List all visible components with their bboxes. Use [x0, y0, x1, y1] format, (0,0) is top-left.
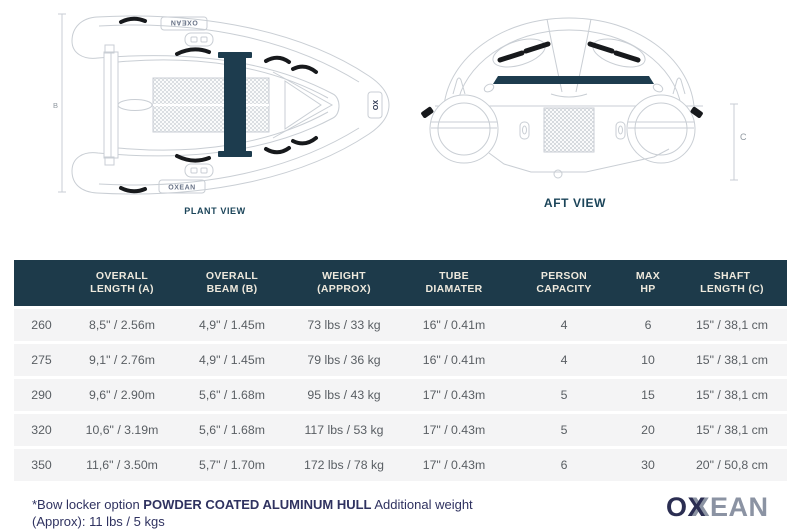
table-row: 290 9,6" / 2.90m 5,6" / 1.68m 95 lbs / 4… — [14, 379, 787, 411]
cell-model: 320 — [14, 414, 69, 446]
aft-view-drawing: C — [401, 10, 779, 198]
header-tube-diameter: TUBE DIAMATER — [399, 260, 509, 306]
footer-note-bold: POWDER COATED ALUMINUM HULL — [143, 497, 371, 512]
table-header-row: OVERALL LENGTH (A) OVERALL BEAM (B) WEIG… — [14, 260, 787, 306]
footer-note: *Bow locker option POWDER COATED ALUMINU… — [32, 496, 480, 530]
table-row: 350 11,6" / 3.50m 5,7" / 1.70m 172 lbs /… — [14, 449, 787, 481]
header-weight: WEIGHT (APPROX) — [289, 260, 399, 306]
tube-logo-bottom: OXEAN — [168, 185, 195, 192]
spec-table: OVERALL LENGTH (A) OVERALL BEAM (B) WEIG… — [14, 260, 787, 481]
header-person-capacity: PERSON CAPACITY — [509, 260, 619, 306]
tube-end-left — [430, 95, 498, 163]
bow-logo: OX — [373, 100, 380, 110]
cell-model: 275 — [14, 344, 69, 376]
drain-plug — [554, 170, 562, 178]
plant-view-drawing: B OXEAN OXEAN OX — [35, 8, 395, 208]
aft-view-label: AFT VIEW — [401, 196, 749, 210]
cell-model: 350 — [14, 449, 69, 481]
cell-model: 290 — [14, 379, 69, 411]
dim-label-b: B — [53, 101, 58, 110]
seat-bar — [493, 76, 654, 84]
table-row: 260 8,5" / 2.56m 4,9" / 1.45m 73 lbs / 3… — [14, 309, 787, 341]
brand-logo: OXXEAN — [666, 492, 769, 523]
engine-mount — [118, 100, 152, 111]
plant-view-label: PLANT VIEW — [35, 206, 395, 216]
header-overall-beam: OVERALL BEAM (B) — [175, 260, 289, 306]
dim-label-c: C — [740, 132, 747, 142]
header-overall-length: OVERALL LENGTH (A) — [69, 260, 175, 306]
logo-letter-x: XX — [688, 492, 707, 523]
cell-model: 260 — [14, 309, 69, 341]
tube-logo-top: OXEAN — [170, 19, 197, 26]
logo-letter-o: O — [666, 492, 688, 522]
header-model — [14, 260, 69, 306]
transom-panel — [544, 108, 594, 152]
header-shaft-length: SHAFT LENGTH (C) — [677, 260, 787, 306]
table-row: 320 10,6" / 3.19m 5,6" / 1.68m 117 lbs /… — [14, 414, 787, 446]
spec-sheet: B OXEAN OXEAN OX PLANT VIEW — [0, 0, 800, 532]
logo-letters-ean: EAN — [710, 492, 769, 522]
header-max-hp: MAX HP — [619, 260, 677, 306]
table-row: 275 9,1" / 2.76m 4,9" / 1.45m 79 lbs / 3… — [14, 344, 787, 376]
